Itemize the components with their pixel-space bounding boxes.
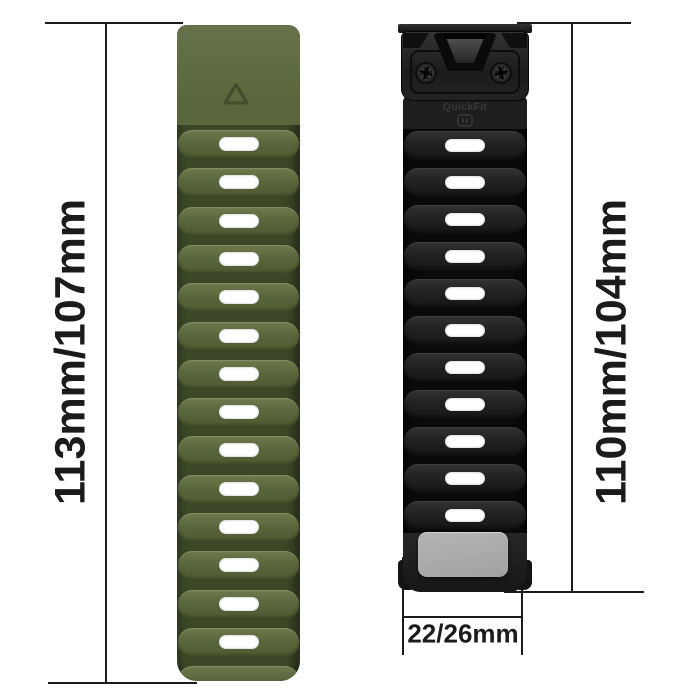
strap-ridge (404, 168, 526, 197)
strap-ridge (178, 245, 299, 274)
strap-slot (219, 520, 259, 534)
screw-icon (490, 62, 512, 84)
strap-slot (219, 175, 259, 189)
strap-ridge (404, 427, 526, 456)
triangle-icon (222, 81, 250, 107)
strap-ridge (404, 242, 526, 271)
strap-slot (219, 405, 259, 419)
strap-ridge (178, 130, 299, 159)
left-dimension-line-top (45, 22, 183, 24)
strap-ridge (178, 590, 299, 619)
left-strap-length-label: 113mm/107mm (47, 199, 96, 505)
green-strap (177, 25, 300, 681)
strap-slot (219, 137, 259, 151)
strap-slot (445, 361, 485, 374)
strap-slot (219, 329, 259, 343)
quickfit-logo-icon (457, 114, 473, 127)
right-dimension-line-vertical (571, 22, 573, 593)
strap-slot (219, 443, 259, 457)
strap-end-cap (178, 666, 299, 681)
strap-ridge (178, 475, 299, 504)
strap-ridge (404, 464, 526, 493)
strap-slot (219, 558, 259, 572)
strap-ridge (178, 283, 299, 312)
quickfit-buckle (398, 24, 532, 101)
screw-icon (415, 62, 437, 84)
lug-width-label: 22/26mm (407, 619, 518, 650)
strap-slot (219, 635, 259, 649)
right-strap-length-label: 110mm/104mm (588, 199, 637, 505)
left-dimension-line-vertical (105, 22, 107, 684)
strap-slot (445, 509, 485, 522)
strap-ridge (178, 168, 299, 197)
strap-ridge (178, 360, 299, 389)
quickfit-label: QuickFit (403, 101, 527, 113)
strap-ridge (178, 322, 299, 351)
strap-slot (445, 287, 485, 300)
strap-ridge (404, 353, 526, 382)
strap-ridge (178, 513, 299, 542)
strap-ridge (178, 207, 299, 236)
strap-ridge (404, 501, 526, 530)
strap-slot (219, 290, 259, 304)
strap-slot (445, 472, 485, 485)
strap-ridge (178, 628, 299, 657)
black-strap: QuickFit (403, 96, 527, 592)
strap-slot (445, 139, 485, 152)
strap-slot (445, 435, 485, 448)
strap-ridge (404, 205, 526, 234)
strap-slot (219, 367, 259, 381)
right-dimension-line-top (517, 22, 631, 24)
buckle-latch-notch (444, 33, 486, 39)
left-dimension-line-bottom (48, 682, 197, 684)
strap-ridge (178, 398, 299, 427)
strap-slot (219, 597, 259, 611)
strap-slot (219, 252, 259, 266)
strap-ridge (178, 436, 299, 465)
strap-slot (445, 398, 485, 411)
strap-ridge (404, 390, 526, 419)
product-dimension-diagram: { "background": "#ffffff", "product": { … (0, 0, 700, 700)
right-dimension-line-bottom (504, 591, 644, 593)
strap-ridge (404, 131, 526, 160)
green-strap-tail (177, 25, 300, 125)
strap-slot (219, 214, 259, 228)
strap-slot (445, 176, 485, 189)
strap-slot (219, 482, 259, 496)
strap-ridge (178, 551, 299, 580)
metal-plate (418, 532, 508, 577)
strap-slot (445, 213, 485, 226)
strap-slot (445, 324, 485, 337)
strap-ridge (404, 316, 526, 345)
strap-ridge (404, 279, 526, 308)
strap-slot (445, 250, 485, 263)
